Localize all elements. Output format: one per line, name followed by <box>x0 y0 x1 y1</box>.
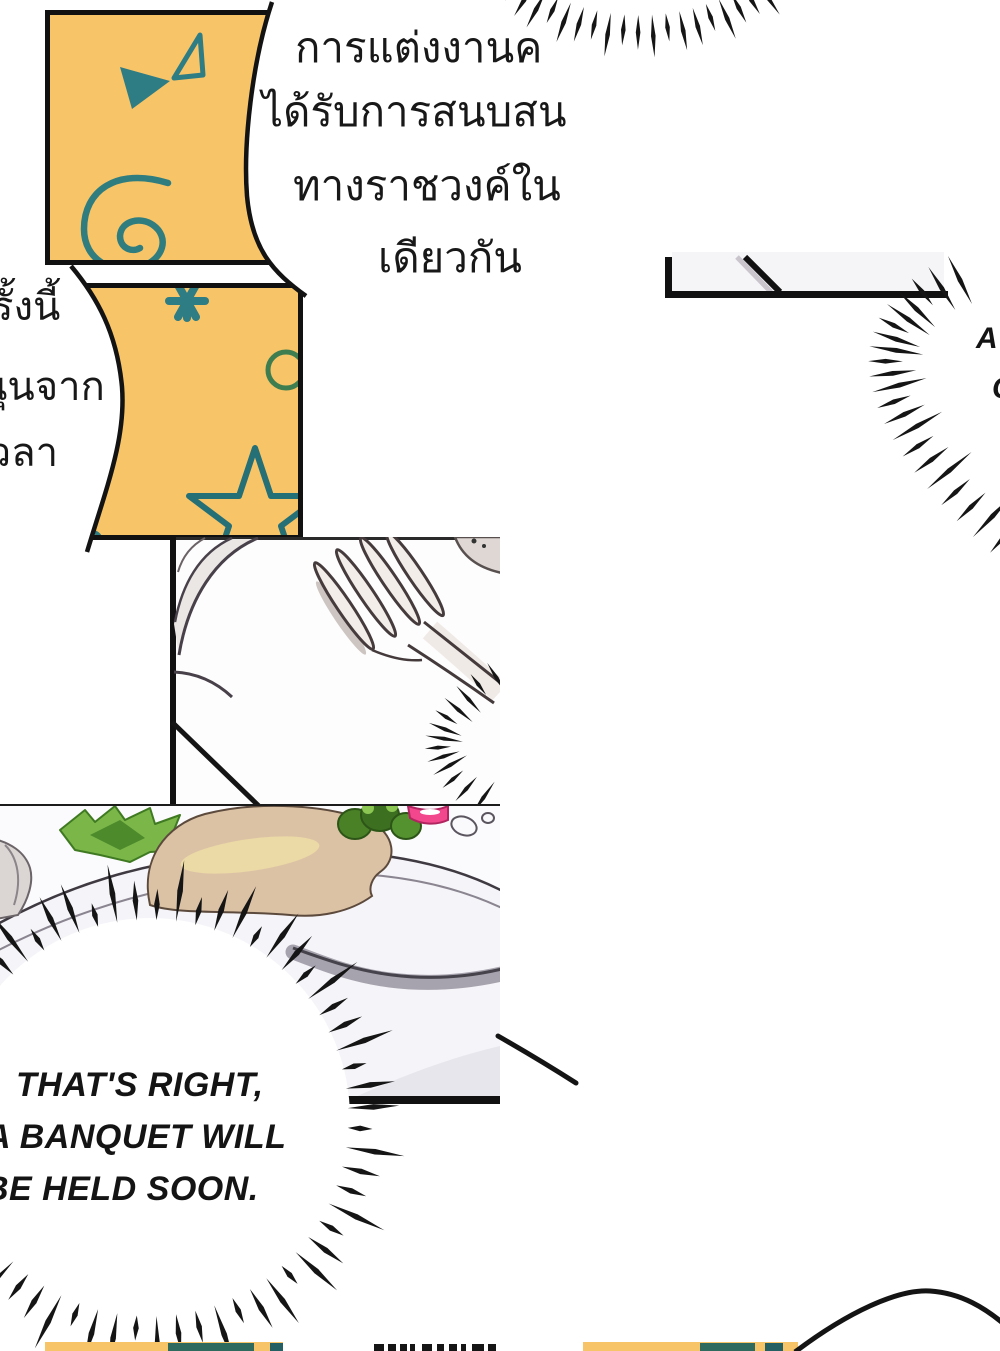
thai-main-line-2: ได้รับการสนบสน <box>262 86 567 139</box>
burst-text-line-3: BE HELD SOON. <box>0 1170 259 1209</box>
thai-main-line-3: ทางราชวงค์ใน <box>293 160 561 213</box>
clipped-letter-tops <box>374 1344 496 1351</box>
next-panel-strip-right <box>583 1342 798 1351</box>
manga-page: การแต่งงานค ได้รับการสนบสน ทางราชวงค์ใน … <box>0 0 1000 1351</box>
right-burst-fragment-1: A <box>976 322 998 356</box>
bottom-bubble-arc <box>795 1291 1000 1351</box>
panel-plate-fork <box>170 529 524 814</box>
thai-main-line-1: การแต่งงานค <box>295 22 542 75</box>
thai-left-line-1: รั้งนี้ <box>0 282 60 332</box>
next-panel-strip-left <box>45 1342 283 1351</box>
panel-plate-fork-top-border <box>170 537 500 540</box>
burst-text-line-1: THAT'S RIGHT, <box>16 1066 264 1105</box>
right-burst-fragment-2: C <box>992 372 1000 406</box>
thai-left-line-2: นุนจาก <box>0 362 105 412</box>
thai-left-line-3: เวลา <box>0 428 58 478</box>
panel-top-right-corner <box>665 252 948 298</box>
burst-text-line-2: A BANQUET WILL <box>0 1118 286 1157</box>
plate-edge-overflow-curve <box>498 1036 576 1083</box>
thai-main-line-4: เดียวกัน <box>378 232 522 285</box>
burst-bubble-right <box>868 256 1000 568</box>
